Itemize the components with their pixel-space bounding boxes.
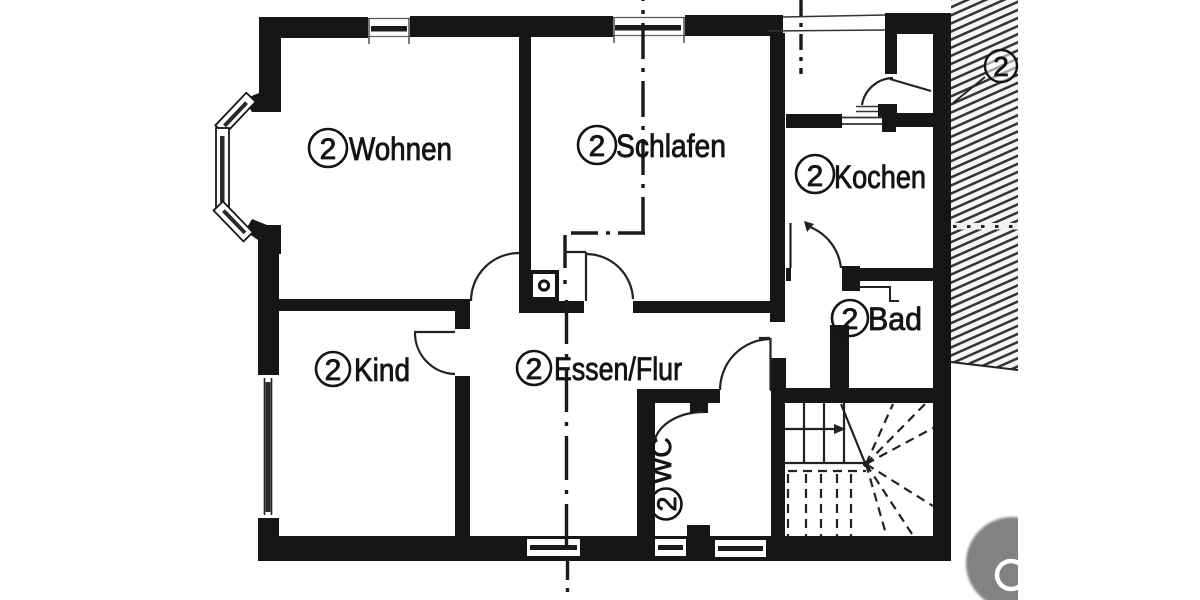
svg-text:2: 2 [807, 160, 824, 193]
svg-text:2: 2 [526, 353, 543, 386]
svg-text:2: 2 [993, 51, 1009, 82]
svg-text:Kind: Kind [354, 352, 410, 388]
svg-text:2: 2 [842, 303, 859, 336]
svg-text:Essen/Flur: Essen/Flur [554, 351, 682, 387]
svg-text:Schlafen: Schlafen [616, 128, 726, 164]
svg-text:2: 2 [589, 130, 606, 163]
svg-text:WC: WC [646, 437, 677, 484]
svg-text:2: 2 [325, 354, 342, 387]
svg-text:2: 2 [652, 496, 682, 511]
svg-text:Wohnen: Wohnen [349, 131, 452, 167]
svg-text:Bad: Bad [868, 301, 922, 337]
svg-text:2: 2 [320, 133, 337, 166]
svg-text:Kochen: Kochen [834, 159, 926, 195]
